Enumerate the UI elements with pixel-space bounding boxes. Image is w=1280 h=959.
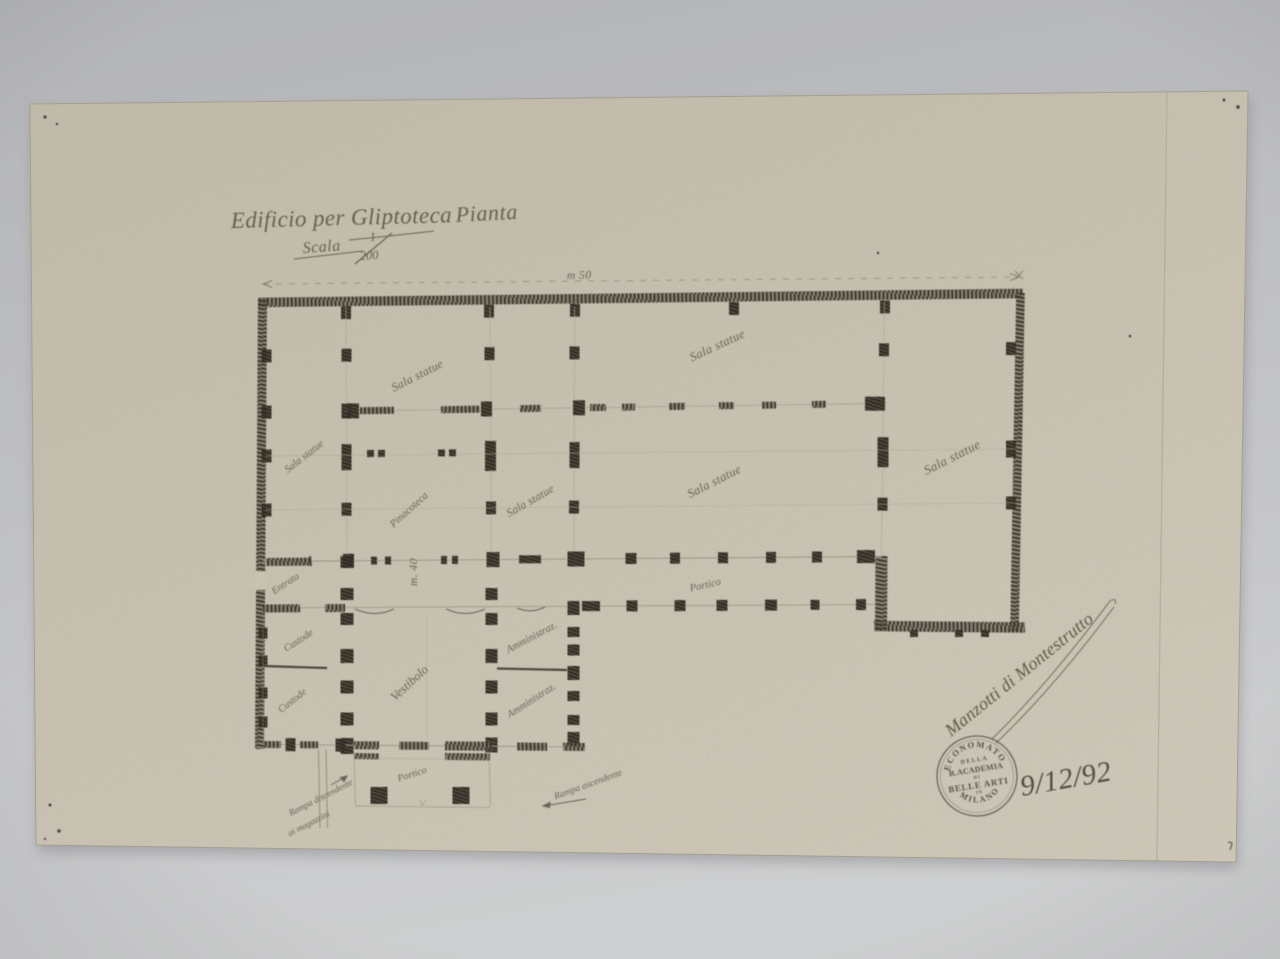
svg-text:IN: IN <box>976 789 984 795</box>
svg-text:m. 40: m. 40 <box>408 558 420 586</box>
svg-text:1: 1 <box>369 230 376 244</box>
svg-text:m 50: m 50 <box>567 270 592 282</box>
svg-text:Pianta: Pianta <box>454 199 518 227</box>
svg-text:200: 200 <box>359 248 379 263</box>
